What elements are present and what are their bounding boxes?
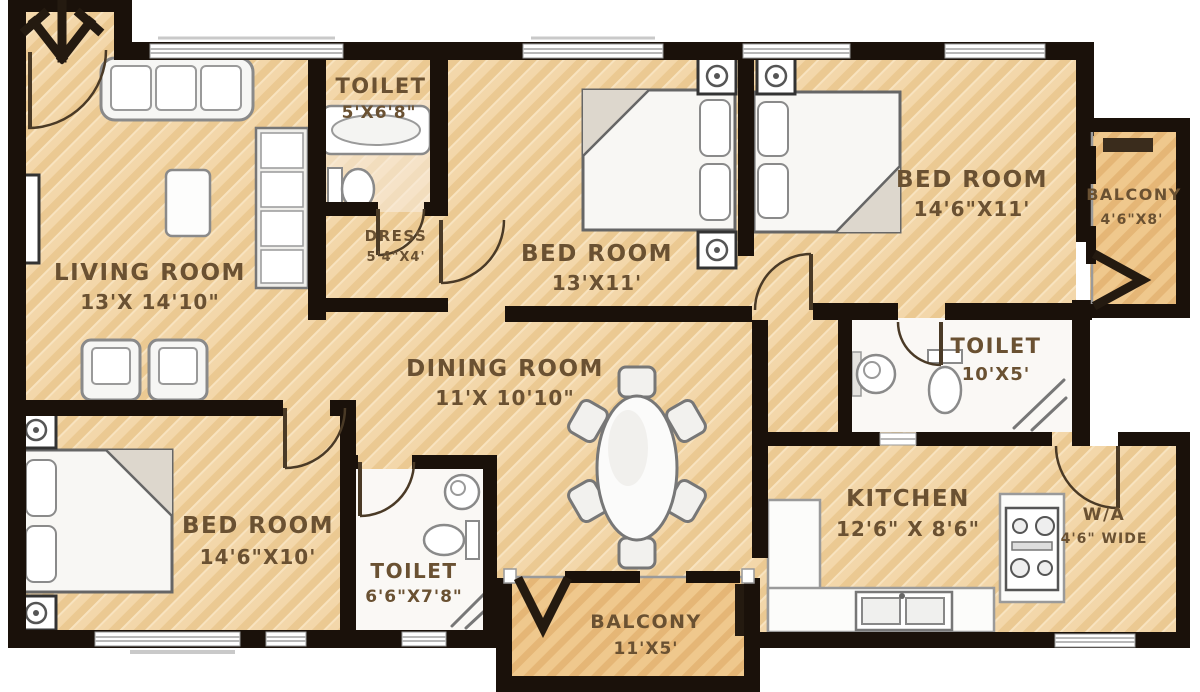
toilet-wc (928, 350, 962, 413)
living-room-dims: 13'X 14'10" (80, 290, 220, 314)
window (402, 632, 446, 646)
window (743, 44, 850, 58)
toilet-right-dims: 10'X5' (962, 364, 1030, 385)
kitchen-dims: 12'6" X 8'6" (836, 517, 980, 541)
toilet-bottom-name: TOILET (370, 559, 457, 583)
bedroom-left-name: BED ROOM (182, 513, 334, 539)
bedroom-center-dims: 13'X11' (552, 271, 642, 295)
dining-chair (619, 367, 655, 397)
wash-basin (445, 475, 479, 509)
toilet-bottom-dims: 6'6"X7'8" (365, 587, 463, 607)
double-bed (583, 90, 735, 230)
balcony-bottom-name: BALCONY (590, 611, 702, 633)
floor-plan: LIVING ROOM 13'X 14'10" TOILET 5'X6'8" D… (0, 0, 1200, 692)
wash-basin (852, 352, 895, 396)
kitchen-name: KITCHEN (846, 486, 970, 512)
nightstand-lamp (698, 232, 736, 268)
balcony-bottom-dims: 11'X5' (613, 639, 678, 659)
planter (1103, 138, 1153, 152)
toilet-wc (424, 521, 479, 559)
window (523, 38, 663, 58)
window (1055, 634, 1135, 647)
bedroom-right-dims: 14'6"X11' (914, 197, 1031, 221)
nightstand-lamp (698, 58, 736, 94)
nightstand-lamp (757, 58, 795, 94)
double-bed (22, 450, 172, 592)
bedroom-right-name: BED ROOM (896, 167, 1048, 193)
toilet-top-dims: 5'X6'8" (342, 103, 417, 123)
wash-area-name: W/A (1083, 505, 1126, 525)
window (95, 632, 240, 652)
living-room-name: LIVING ROOM (54, 260, 246, 286)
armchair (149, 340, 207, 400)
dress-name: DRESS (365, 227, 428, 245)
dress-dims: 5'4"X4' (367, 250, 426, 265)
kitchen-pass-window (880, 433, 916, 445)
bedroom-left-dims: 14'6"X10' (200, 545, 317, 569)
floor-plan-canvas: LIVING ROOM 13'X 14'10" TOILET 5'X6'8" D… (0, 0, 1200, 692)
dining-room-dims: 11'X 10'10" (435, 386, 575, 410)
dining-table (597, 396, 677, 540)
bookshelf (256, 128, 308, 288)
sofa (101, 58, 253, 120)
wash-area-dims: 4'6" WIDE (1061, 531, 1148, 547)
kitchen-sink (856, 592, 952, 630)
bedroom-center-name: BED ROOM (521, 241, 673, 267)
window (945, 44, 1045, 58)
toilet-right-name: TOILET (950, 334, 1041, 358)
stove (1000, 494, 1064, 602)
toilet-top-name: TOILET (335, 74, 426, 98)
dining-room-name: DINING ROOM (406, 356, 604, 382)
double-bed (754, 92, 900, 232)
balcony-right-name: BALCONY (1086, 185, 1182, 204)
armchair (82, 340, 140, 400)
window (266, 632, 306, 646)
balcony-right-dims: 4'6"X8' (1101, 212, 1164, 228)
window (150, 38, 343, 58)
dining-chair (619, 538, 655, 568)
coffee-table (166, 170, 210, 236)
